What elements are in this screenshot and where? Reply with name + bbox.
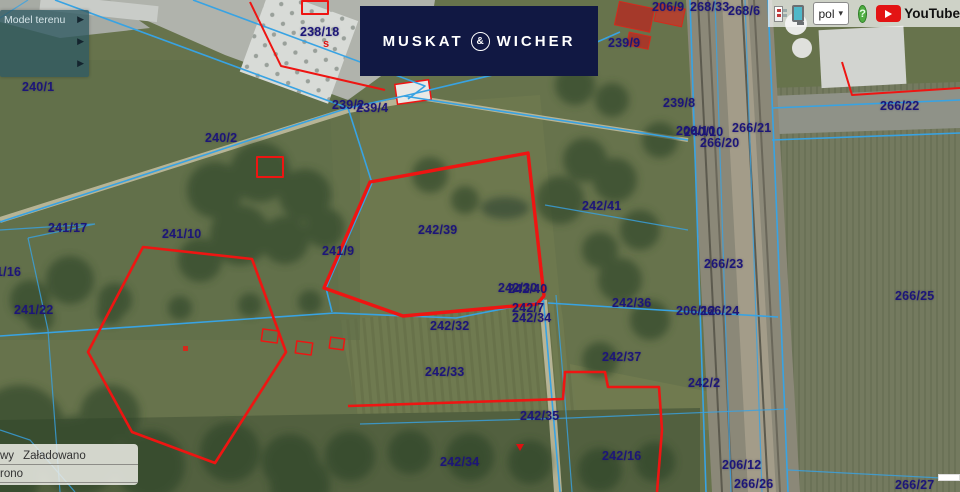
map-viewport: 240/1240/2238/18239/9206/9268/33268/6239…: [0, 0, 960, 492]
layer-panel-row[interactable]: ▶: [0, 54, 89, 76]
youtube-link[interactable]: YouTube: [876, 5, 960, 22]
layer-panel-title: Model terenu: [4, 14, 65, 26]
status-label: rono: [0, 468, 23, 480]
scale-bar: [938, 474, 960, 481]
youtube-label: YouTube: [904, 6, 960, 21]
chevron-down-icon: ▾: [838, 8, 843, 19]
expand-arrow-icon[interactable]: ▶: [77, 58, 84, 69]
language-select[interactable]: pol ▾: [813, 2, 849, 25]
status-panel: wy Załadowano rono: [0, 444, 138, 485]
expand-arrow-icon[interactable]: ▶: [77, 36, 84, 47]
help-button[interactable]: ?: [858, 5, 867, 23]
legend-grid-icon[interactable]: [774, 6, 783, 22]
language-selected-value: pol: [819, 7, 835, 21]
status-row: wy Załadowano: [0, 447, 138, 465]
monitor-icon[interactable]: [792, 5, 804, 22]
expand-arrow-icon[interactable]: ▶: [77, 14, 84, 25]
layer-panel-row[interactable]: Model terenu ▶: [0, 10, 89, 32]
youtube-play-icon: [876, 5, 901, 22]
status-row: rono: [0, 465, 138, 483]
status-label: wy: [0, 450, 14, 462]
status-value: Załadowano: [23, 450, 86, 462]
brand-banner: MUSKAT & WICHER: [360, 6, 598, 76]
brand-name-right: WICHER: [497, 33, 576, 50]
brand-name-left: MUSKAT: [383, 33, 464, 50]
brand-ampersand-logo: &: [471, 32, 490, 51]
layer-panel-row[interactable]: ▶: [0, 32, 89, 54]
layer-panel: Model terenu ▶ ▶ ▶: [0, 10, 89, 77]
topbar-controls: pol ▾ ? YouTube: [768, 0, 960, 27]
